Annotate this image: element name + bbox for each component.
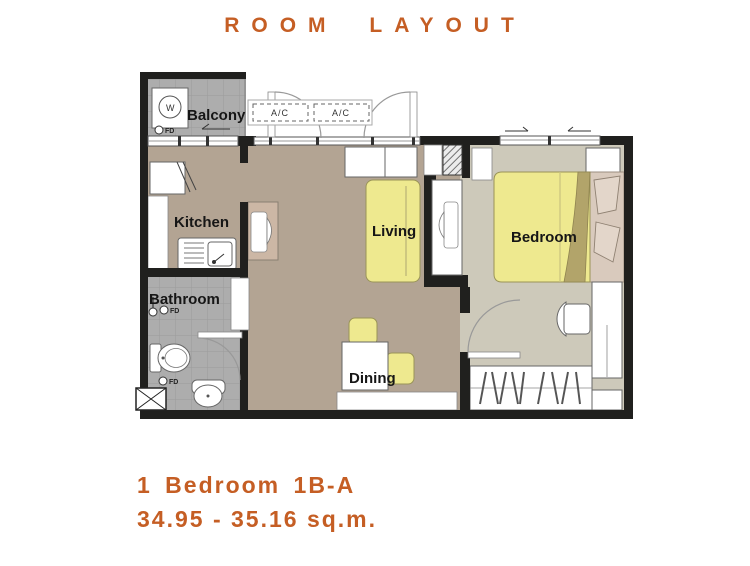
nightstand [586,148,620,174]
unit-area: 34.95 - 35.16 sq.m. [137,506,377,533]
floor-drain-label: FD [165,128,174,135]
entry-niche-box [424,145,442,175]
ac-label-1: A/C [271,108,289,118]
bedroom-label: Bedroom [511,229,577,246]
fridge [150,162,185,194]
kitchen-counter [148,196,168,270]
tv-bedroom [444,202,458,248]
slide-arrow-left-icon [568,127,591,131]
bedroom-door-leaf [468,352,520,358]
wardrobe-corner-unit [592,390,622,410]
kitchen-label: Kitchen [174,214,229,231]
washer-label: W [166,103,175,113]
shower-icon [149,308,157,316]
floor-drain-label: FD [169,379,178,386]
entry-cabinet-1 [345,147,385,177]
bedroom-tv-console [432,180,462,275]
dining-label: Dining [349,370,396,387]
unit-info: 1 Bedroom 1B-A 34.95 - 35.16 sq.m. [137,472,377,533]
pillow [594,176,620,214]
balcony-label: Balcony [187,107,246,124]
bathroom-label: Bathroom [149,291,220,308]
bathroom-door-leaf [198,332,242,338]
sink-basin [208,242,232,266]
entry-cabinet-2 [385,147,417,177]
floor-drain-icon [159,377,167,385]
floor-drain-label: FD [170,308,179,315]
shaft-hatched [443,145,462,175]
toilet-hinge [162,357,165,360]
bathroom-slide-door [231,278,249,330]
tv-living [251,212,267,252]
entrance-door-leaf [410,92,417,137]
unit-type: 1 Bedroom 1B-A [137,472,377,499]
slide-arrow-right-icon [505,127,528,131]
room-layout-page: ROOM LAYOUT W FD [0,0,750,566]
bedroom-cabinet [472,148,492,180]
ac-label-2: A/C [332,108,350,118]
desk-chair [564,304,590,334]
dining-bench [337,392,457,410]
basin-drain [207,395,210,398]
dining-chair-top [349,318,377,345]
floor-drain-icon [155,126,163,134]
living-label: Living [372,223,416,240]
